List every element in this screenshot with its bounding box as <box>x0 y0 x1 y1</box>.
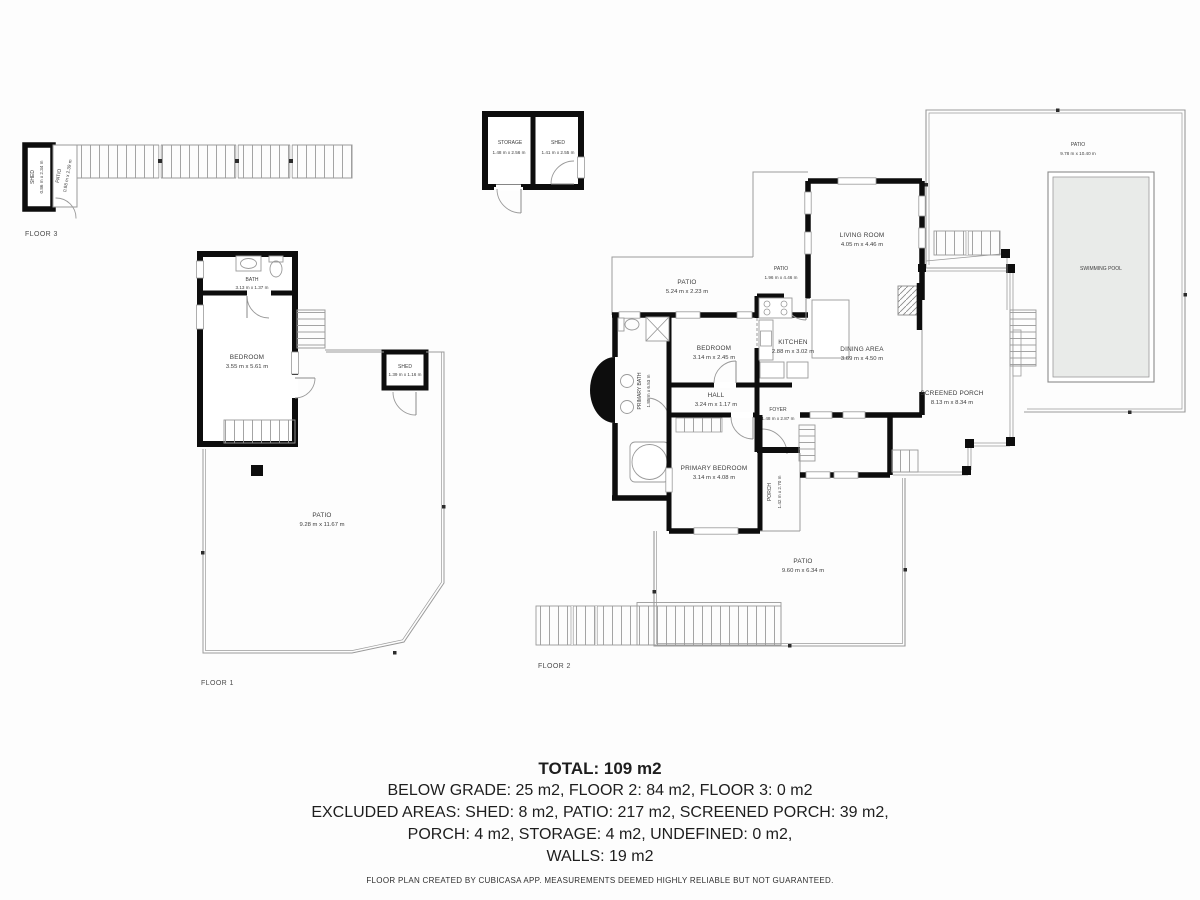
floor1-patio-pillar <box>251 465 263 476</box>
living-right-window-1 <box>919 196 925 216</box>
living-top-window <box>838 178 876 184</box>
porch-dims: 1.42 m x 2.70 m <box>777 475 782 508</box>
floor1-label: FLOOR 1 <box>201 680 234 687</box>
disclaimer-text: FLOOR PLAN CREATED BY CUBICASA APP. MEAS… <box>0 876 1200 885</box>
floor1-shed-label: SHED <box>398 364 412 370</box>
patio-side-label: PATIO <box>774 266 788 272</box>
summary-line-3: PORCH: 4 m2, STORAGE: 4 m2, UNDEFINED: 0… <box>0 824 1200 846</box>
bath-toilet-bowl <box>625 319 639 330</box>
stairroom-bottom-window-1 <box>806 472 830 478</box>
poolside-pillar <box>1001 249 1010 258</box>
living-left-window-2 <box>805 232 811 254</box>
patio-top-label: PATIO <box>677 279 696 286</box>
floor2-label: FLOOR 2 <box>538 663 571 670</box>
floor3-deck <box>76 145 352 178</box>
floor1-window-1 <box>197 261 204 278</box>
swimming-pool-water <box>1053 177 1149 377</box>
pool-patio-tick-4 <box>1128 411 1132 415</box>
bottom-patio-label: PATIO <box>793 558 812 565</box>
dining-dims: 3.69 m x 4.50 m <box>841 356 883 362</box>
sporch-pillar-2 <box>1006 437 1015 446</box>
bedroom-door-arc <box>714 361 736 383</box>
primary-bath-dims: 1.85 m x 6.53 m <box>646 374 651 407</box>
screened-porch-dims: 8.13 m x 8.34 m <box>931 400 973 406</box>
outbuilding-plan: STORAGE 1.48 m x 2.56 m SHED 1.41 m x 2.… <box>485 114 585 213</box>
floor1-shed-dims: 1.39 m x 1.16 m <box>389 372 422 377</box>
screened-porch-label: SCREENED PORCH <box>920 390 983 397</box>
floor1-window-3 <box>292 352 299 374</box>
floor1-bedroom-label: BEDROOM <box>230 354 264 361</box>
living-room-label: LIVING ROOM <box>840 232 885 239</box>
pool-patio-dims: 9.78 m x 10.40 m <box>1060 151 1096 156</box>
bottom-patio-tick-2 <box>788 644 792 648</box>
pbedroom-door-arc <box>731 417 753 439</box>
summary-total: TOTAL: 109 m2 <box>0 758 1200 780</box>
floor1-bath-dims: 3.13 m x 1.37 m <box>236 285 269 290</box>
floor1-plan: BATH 3.13 m x 1.37 m BEDROOM 3.55 m x 5.… <box>197 254 446 687</box>
outbuilding-window <box>578 157 585 178</box>
bottom-patio-tick-3 <box>904 568 908 572</box>
hall-dims: 3.24 m x 1.17 m <box>695 402 737 408</box>
sporch-pillar-5 <box>918 264 926 272</box>
sporch-pillar-3 <box>965 439 974 448</box>
floor3-plan: SHED 0.86 m x 2.34 m PATIO 0.88 m x 2.39… <box>25 145 352 238</box>
bedroom2-label: BEDROOM <box>697 345 731 352</box>
patio-top-dims: 5.24 m x 2.23 m <box>666 289 708 295</box>
pool-patio-tick-3 <box>925 183 929 187</box>
leftwing-window-2 <box>676 312 700 318</box>
floor1-patio-label: PATIO <box>312 512 331 519</box>
deck-tick-1 <box>158 159 162 163</box>
bottom-patio-dims: 9.60 m x 6.34 m <box>782 568 824 574</box>
hall-label: HALL <box>708 392 725 399</box>
leftwing-window-1 <box>619 312 640 318</box>
dining-label: DINING AREA <box>840 346 884 353</box>
pbedroom-left-window <box>666 468 672 492</box>
floor1-patio-dims: 9.28 m x 11.67 m <box>299 522 344 528</box>
floor1-patio-tick-1 <box>201 551 205 555</box>
kitchen-stove <box>759 298 792 318</box>
floor1-stairs <box>297 310 325 348</box>
floor1-shed <box>384 352 426 388</box>
foyer-label: FOYER <box>769 407 787 413</box>
foyer-dims: 1.48 m x 2.87 m <box>762 416 795 421</box>
bath-bay-wall <box>590 357 615 423</box>
summary-line-1: BELOW GRADE: 25 m2, FLOOR 2: 84 m2, FLOO… <box>0 780 1200 802</box>
floor1-patio-tick-3 <box>442 505 446 509</box>
exterior-side-stairs <box>892 450 918 472</box>
kitchen-dims: 2.88 m x 3.02 m <box>772 349 814 355</box>
storage-dims: 1.48 m x 2.56 m <box>493 150 526 155</box>
swimming-pool-label: SWIMMING POOL <box>1080 266 1122 272</box>
bedroom2-dims: 3.14 m x 2.45 m <box>693 355 735 361</box>
bath-sink-2 <box>621 401 634 414</box>
floor1-bath-label: BATH <box>246 277 259 283</box>
stairroom-bottom-window-2 <box>834 472 858 478</box>
sporch-step-wall-1 <box>972 443 1010 446</box>
floor1-window-2 <box>197 305 204 329</box>
deck-tick-2 <box>235 159 239 163</box>
living-right-window-2 <box>919 228 925 248</box>
outbuilding-shed-dims: 1.41 m x 2.55 m <box>542 150 575 155</box>
fireplace <box>898 286 917 315</box>
stairroom-top-window-2 <box>843 412 865 418</box>
pool-stairs <box>1010 310 1036 366</box>
bath-tub <box>632 445 667 480</box>
living-room-dims: 4.05 m x 4.46 m <box>841 242 883 248</box>
hall-door-gap <box>731 412 753 418</box>
kitchen-counter-bottom-2 <box>787 362 808 378</box>
leftwing-window-3 <box>737 312 752 318</box>
floor1-interior-deck <box>224 420 295 443</box>
outbuilding-shed-label: SHED <box>551 140 565 146</box>
stairroom-stairs <box>799 425 815 461</box>
pool-patio-tick-2 <box>1184 293 1188 297</box>
deck-tick-3 <box>289 159 293 163</box>
floor3-shed-label: SHED <box>30 170 36 184</box>
primary-bedroom-label: PRIMARY BEDROOM <box>681 465 748 472</box>
pbedroom-bottom-window <box>694 528 738 534</box>
floor3-label: FLOOR 3 <box>25 231 58 238</box>
floor-plan-canvas: SHED 0.86 m x 2.34 m PATIO 0.88 m x 2.39… <box>0 0 1200 756</box>
summary-line-4: WALLS: 19 m2 <box>0 846 1200 868</box>
storage-label: STORAGE <box>498 140 523 146</box>
sporch-bottom-wall <box>893 472 968 475</box>
floor3-shed-dims: 0.86 m x 2.34 m <box>39 160 44 193</box>
porch-label: PORCH <box>767 483 773 501</box>
bath-toilet-tank <box>618 318 624 331</box>
bottom-patio-tick-1 <box>653 590 657 594</box>
floor-plan-page: SHED 0.86 m x 2.34 m PATIO 0.88 m x 2.39… <box>0 0 1200 900</box>
floor1-bedroom-dims: 3.55 m x 5.61 m <box>226 364 268 370</box>
stairroom-top-window-1 <box>810 412 832 418</box>
bath-sink-1 <box>621 375 634 388</box>
primary-bedroom-dims: 3.14 m x 4.08 m <box>693 475 735 481</box>
pbedroom-closet-steps <box>676 418 722 432</box>
floor1-shed-door-arc <box>393 392 416 415</box>
summary-line-2: EXCLUDED AREAS: SHED: 8 m2, PATIO: 217 m… <box>0 802 1200 824</box>
patio-side-dims: 1.96 m x 4.46 m <box>765 275 798 280</box>
pool-patio-tick-1 <box>1056 109 1060 113</box>
dining-corner-wall <box>890 392 922 415</box>
patio-side-outline <box>753 172 808 257</box>
sporch-pillar-4 <box>962 466 971 475</box>
floor1-bath-door-gap <box>247 290 271 296</box>
storage-door-arc <box>497 189 521 213</box>
floor2-plan: PATIO 9.78 m x 10.40 m SWIMMING POOL PAT… <box>536 109 1187 671</box>
bedroom-door-gap <box>714 382 736 388</box>
floor1-patio-tick-2 <box>393 651 397 655</box>
living-left-window-1 <box>805 192 811 214</box>
area-summary: TOTAL: 109 m2 BELOW GRADE: 25 m2, FLOOR … <box>0 758 1200 868</box>
storage-door-opening <box>496 185 521 191</box>
kitchen-counter-bottom-1 <box>760 362 784 378</box>
kitchen-label: KITCHEN <box>778 339 808 346</box>
pool-patio-label: PATIO <box>1071 142 1085 148</box>
patio-top-outline <box>612 257 753 315</box>
primary-bath-label: PRIMARY BATH <box>637 372 643 409</box>
